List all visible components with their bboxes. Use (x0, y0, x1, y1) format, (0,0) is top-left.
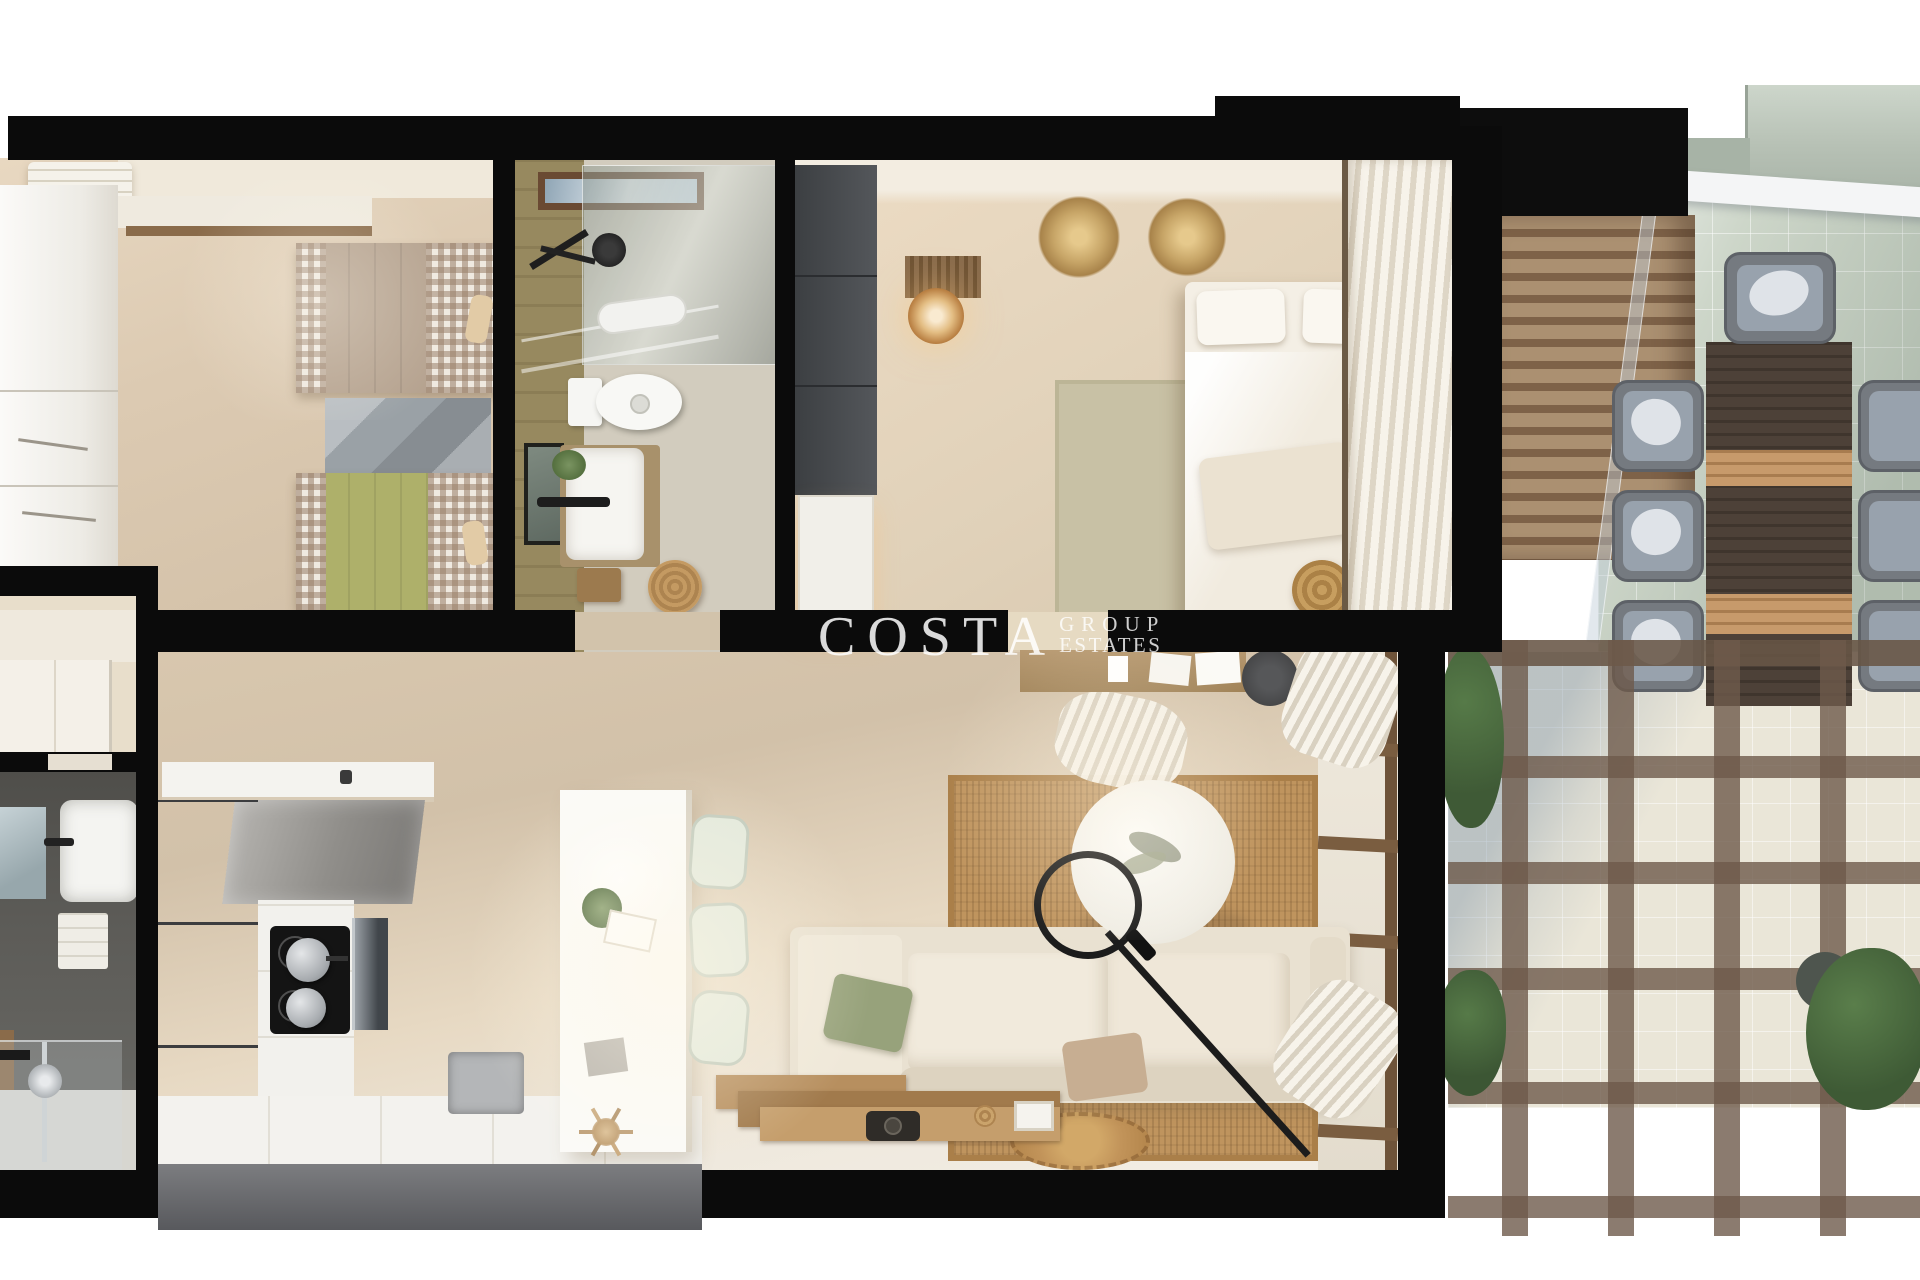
pergola-beam-vertical (1502, 640, 1528, 1236)
bath2-mirror (0, 807, 46, 899)
cooking-pot (286, 988, 326, 1028)
bath2-shower-head (28, 1064, 62, 1098)
watermark-subtitle: GROUP ESTATES (1059, 612, 1165, 656)
rattan-basket (648, 560, 702, 614)
counter-faucet (340, 770, 352, 784)
bed-plaid-edge (296, 473, 326, 610)
table-light-band (1706, 450, 1852, 486)
kitchen-island (560, 790, 686, 1152)
toilet-flush (630, 394, 650, 414)
vanity-plant (552, 450, 586, 480)
watermark-line1: GROUP (1059, 614, 1165, 635)
toilet (568, 372, 682, 432)
pergola-beam-vertical (1608, 640, 1634, 1236)
wall-hall-horizontal (0, 566, 148, 596)
graphite-wardrobe (795, 165, 877, 495)
wardrobe-seam (0, 390, 118, 392)
bar-stool (688, 902, 750, 979)
watermark-line2: ESTATES (1059, 635, 1165, 656)
bar-stool (687, 813, 750, 891)
base-sink (448, 1052, 524, 1114)
chair-cushion (1869, 391, 1920, 461)
bed-throw (1198, 441, 1358, 551)
wall-medallion (1032, 190, 1126, 284)
shower-head (592, 233, 626, 267)
wardrobe-handle (22, 511, 96, 522)
bath2-sink (60, 800, 138, 902)
master-curtains (1348, 160, 1452, 650)
pot-handle (326, 956, 348, 961)
outdoor-chair (1858, 490, 1920, 582)
bath2-faucet (44, 838, 74, 846)
door-gap-bathroom1 (575, 612, 720, 650)
outdoor-chair (1858, 380, 1920, 472)
single-bed-green (296, 473, 496, 610)
gray-area-rug (325, 398, 491, 474)
hallway-wall-white (0, 610, 136, 662)
door-seam (54, 660, 56, 752)
arc-lamp-ring (1034, 851, 1142, 959)
pergola-beam-horizontal (1448, 756, 1920, 778)
wall-top-raised (1215, 96, 1460, 160)
wall-shelf (118, 196, 372, 228)
pampas-center (592, 1118, 620, 1146)
bath2-towel-shelf (58, 913, 108, 969)
photo-frame-decor (1014, 1101, 1054, 1131)
wall-kitchen-left (136, 566, 158, 1172)
watermark-brand: COSTA (818, 612, 1057, 662)
watermark: COSTA GROUP ESTATES (818, 612, 1165, 662)
wall-south-segment (155, 610, 575, 652)
wardrobe-handle (18, 438, 88, 451)
entry-door (0, 660, 112, 752)
white-wardrobe (0, 185, 118, 566)
cooking-pot (286, 938, 330, 982)
outdoor-chair (1612, 490, 1704, 582)
table-light-band (1706, 594, 1852, 634)
wood-tray (577, 568, 621, 602)
pergola-beam-horizontal (1448, 1196, 1920, 1218)
outdoor-chair (1612, 380, 1704, 472)
wall-living-right (1398, 610, 1445, 1218)
chair-cushion (1869, 501, 1920, 571)
wall-twin-bath-divider (493, 158, 515, 652)
single-bed-taupe (296, 243, 496, 393)
rattan-ball-decor (974, 1105, 996, 1127)
pergola-beam-horizontal (1448, 862, 1920, 884)
shelf-wood-trim (126, 226, 372, 236)
kitchen-base-front (158, 1164, 702, 1230)
camera-lens (884, 1117, 902, 1135)
wardrobe-seam (0, 485, 118, 487)
bath2-fixture-bar (0, 1050, 30, 1060)
wall-bath-master-divider (775, 158, 795, 652)
pergola-beam-vertical (1714, 640, 1740, 1236)
wood-sideboard (716, 1075, 1060, 1141)
wall-bedroom-right (1452, 126, 1502, 652)
floor-plan-render: COSTA GROUP ESTATES (0, 0, 1920, 1280)
bed-plaid-edge (296, 243, 326, 393)
outdoor-chair (1724, 252, 1836, 344)
vanity-faucet (537, 497, 610, 507)
pergola-beam-vertical (1820, 640, 1846, 1236)
bed-pillow (1196, 288, 1286, 345)
kitchen-wall-counter (162, 762, 434, 802)
dried-pampas (578, 1104, 634, 1160)
door-gap-bathroom2 (48, 754, 112, 770)
tan-pillow (1061, 1032, 1149, 1103)
green-bush (1806, 948, 1920, 1110)
wall-medallion (1142, 192, 1232, 282)
wardrobe-seam (795, 275, 877, 277)
twin-ceiling-band (118, 158, 497, 198)
bath2-glass-pole (42, 1042, 47, 1162)
oven (352, 918, 388, 1030)
desk-paper (1195, 651, 1241, 686)
wardrobe-seam (795, 385, 877, 387)
bedside-lamp (908, 288, 964, 344)
island-napkin (584, 1037, 628, 1076)
bar-stool (687, 989, 751, 1068)
